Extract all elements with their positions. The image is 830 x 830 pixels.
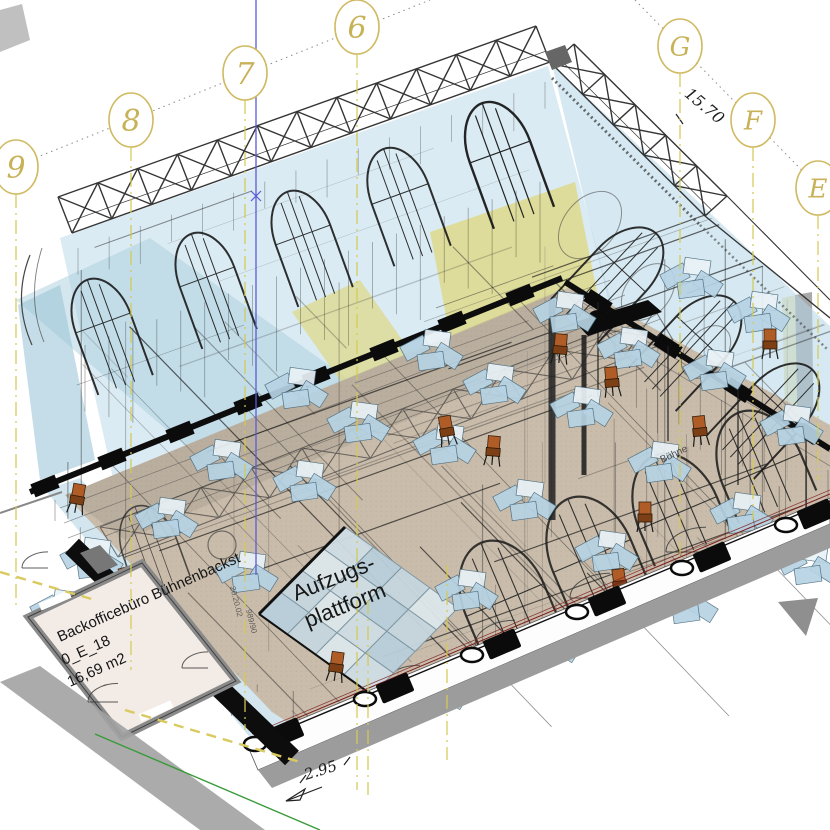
glass-desk-panel	[700, 371, 728, 390]
grid-bubble-label: F	[743, 106, 763, 136]
glass-desk-panel	[550, 313, 578, 332]
glass-desk-panel	[645, 463, 673, 482]
dim-tick	[344, 757, 350, 765]
model-canvas[interactable]: 6789GFE 15.70 2.95 Aufzugs- plattform Ba…	[0, 0, 830, 830]
truss-diagonal	[337, 97, 391, 119]
truss-diagonal	[377, 83, 431, 105]
column-base-ring	[671, 561, 693, 575]
truss-diagonal	[496, 40, 550, 62]
grid-bubble-label: 7	[235, 57, 255, 92]
grid-bubble: 8	[109, 93, 153, 147]
band-end-wedge	[778, 598, 818, 636]
truss-diagonal	[297, 112, 351, 134]
north-arrow	[286, 787, 322, 801]
glass-desk-panel	[282, 389, 310, 408]
chair-back	[764, 329, 776, 342]
wire	[686, 638, 786, 740]
glass-desk-panel	[592, 552, 620, 571]
truss-vertical	[674, 166, 696, 186]
chair-seat	[553, 345, 568, 354]
glass-desk-panel	[344, 423, 372, 442]
wire	[724, 596, 830, 704]
glass-desk-panel	[614, 349, 642, 368]
glass-desk-panel	[430, 445, 458, 464]
dimension-width: 15.70	[681, 84, 728, 128]
plan-door-swing	[22, 552, 48, 568]
cad-3d-viewport[interactable]: 6789GFE 15.70 2.95 Aufzugs- plattform Ba…	[0, 0, 830, 830]
north-arrow-head	[286, 789, 305, 801]
glass-desk-panel	[417, 351, 445, 370]
glass-desk-panel	[510, 501, 538, 520]
chair-seat	[486, 447, 501, 456]
grid-bubble-label: 8	[121, 104, 140, 139]
chair-seat	[605, 378, 620, 387]
truss-diagonal	[178, 154, 232, 176]
chair-seat	[693, 427, 708, 436]
glass-desk-panel	[567, 408, 595, 427]
chair-seat	[763, 341, 777, 349]
grid-bubble: F	[731, 93, 775, 147]
truss-diagonal	[257, 126, 311, 148]
truss-diagonal	[138, 169, 192, 191]
chair-seat	[638, 514, 652, 522]
grid-bubble: 6	[335, 0, 379, 54]
truss-diagonal	[417, 69, 471, 91]
plan-edge	[0, 492, 62, 513]
truss-vertical	[583, 74, 605, 94]
grid-bubble: G	[658, 19, 702, 73]
glass-desk-panel	[480, 385, 508, 404]
glass-desk-panel	[290, 482, 318, 501]
glass-desk-panel	[777, 426, 805, 445]
truss-diagonal	[98, 183, 152, 205]
grid-bubble: 9	[0, 140, 38, 194]
truss-diagonal	[217, 140, 271, 162]
glass-desk-panel	[677, 279, 705, 298]
roof-sliver-gray	[0, 4, 30, 52]
truss-vertical	[644, 135, 666, 155]
glass-desk-panel	[452, 591, 480, 610]
truss-vertical	[613, 105, 635, 125]
grid-bubble-label: 9	[6, 151, 25, 186]
column-base-ring	[461, 648, 483, 662]
column-base-ring	[775, 518, 797, 532]
glass-desk-panel	[207, 461, 235, 480]
grid-bubble-label: 6	[347, 11, 366, 46]
glass-desk-panel	[794, 565, 822, 584]
truss-diagonal	[456, 55, 510, 77]
truss-diagonal	[58, 197, 112, 219]
grid-bubble-label: E	[808, 174, 828, 204]
glass-desk-panel	[152, 519, 180, 538]
truss-vertical	[705, 196, 727, 216]
chair-seat	[329, 663, 344, 673]
column-base-ring	[566, 605, 588, 619]
grid-bubble: 7	[223, 46, 267, 100]
chair-back	[639, 502, 651, 515]
grid-bubble-label: G	[670, 32, 691, 62]
